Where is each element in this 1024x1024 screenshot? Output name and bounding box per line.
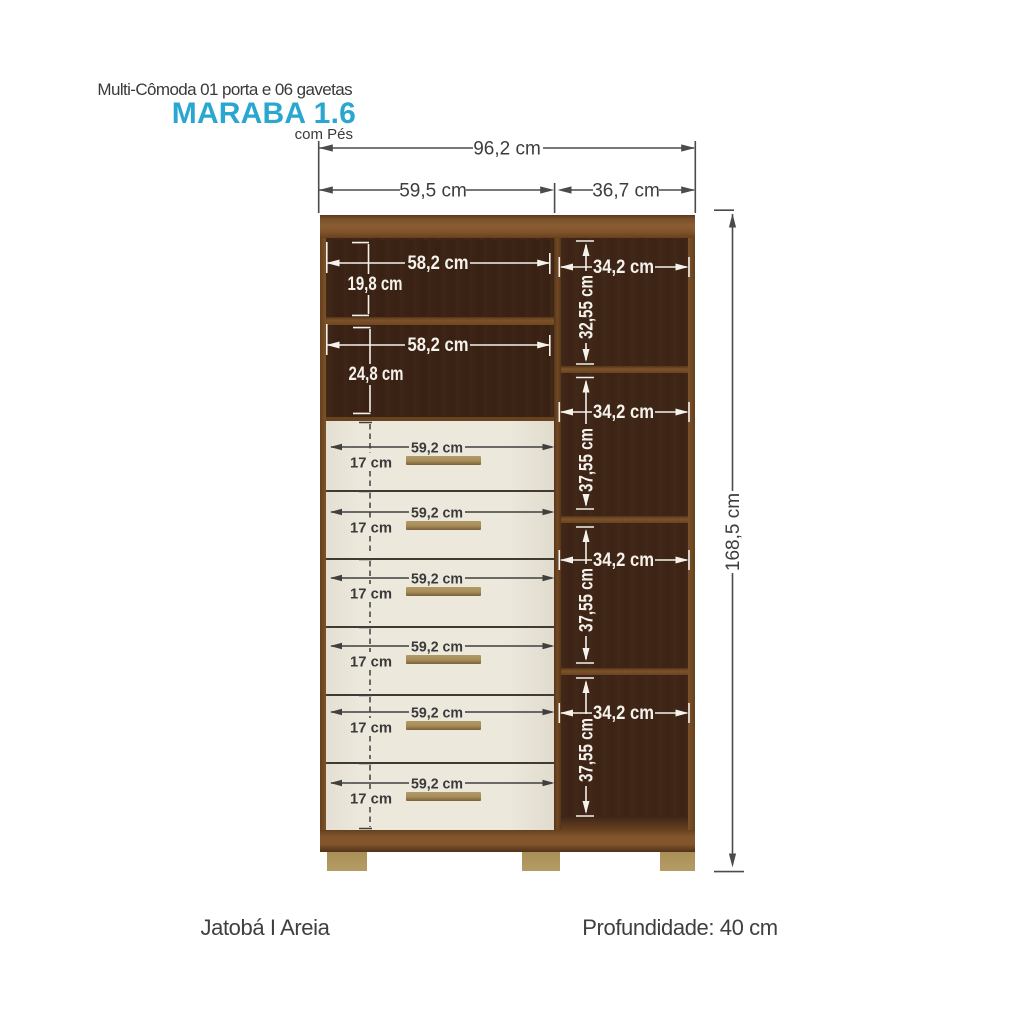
svg-text:96,2 cm: 96,2 cm: [473, 139, 541, 160]
svg-text:58,2 cm: 58,2 cm: [408, 253, 469, 274]
svg-text:17 cm: 17 cm: [350, 520, 392, 537]
svg-text:19,8 cm: 19,8 cm: [348, 274, 403, 295]
svg-text:32,55 cm: 32,55 cm: [577, 275, 598, 339]
svg-text:59,2 cm: 59,2 cm: [411, 505, 463, 522]
svg-text:34,2 cm: 34,2 cm: [593, 257, 654, 278]
svg-text:59,2 cm: 59,2 cm: [411, 776, 463, 793]
svg-text:17 cm: 17 cm: [350, 791, 392, 808]
svg-text:17 cm: 17 cm: [350, 654, 392, 671]
svg-text:59,2 cm: 59,2 cm: [411, 571, 463, 588]
svg-text:36,7 cm: 36,7 cm: [592, 181, 660, 202]
svg-text:59,2 cm: 59,2 cm: [411, 639, 463, 656]
svg-text:17 cm: 17 cm: [350, 455, 392, 472]
svg-text:34,2 cm: 34,2 cm: [593, 402, 654, 423]
svg-text:59,2 cm: 59,2 cm: [411, 705, 463, 722]
svg-text:168,5 cm: 168,5 cm: [723, 493, 744, 571]
svg-text:34,2 cm: 34,2 cm: [593, 703, 654, 724]
svg-text:37,55 cm: 37,55 cm: [577, 428, 598, 492]
svg-text:17 cm: 17 cm: [350, 586, 392, 603]
svg-text:17 cm: 17 cm: [350, 720, 392, 737]
svg-text:58,2 cm: 58,2 cm: [408, 335, 469, 356]
svg-text:24,8 cm: 24,8 cm: [349, 364, 404, 385]
svg-text:37,55 cm: 37,55 cm: [577, 718, 598, 782]
svg-text:59,2 cm: 59,2 cm: [411, 440, 463, 457]
svg-text:34,2 cm: 34,2 cm: [593, 550, 654, 571]
svg-text:59,5 cm: 59,5 cm: [399, 181, 467, 202]
svg-text:37,55 cm: 37,55 cm: [577, 568, 598, 632]
